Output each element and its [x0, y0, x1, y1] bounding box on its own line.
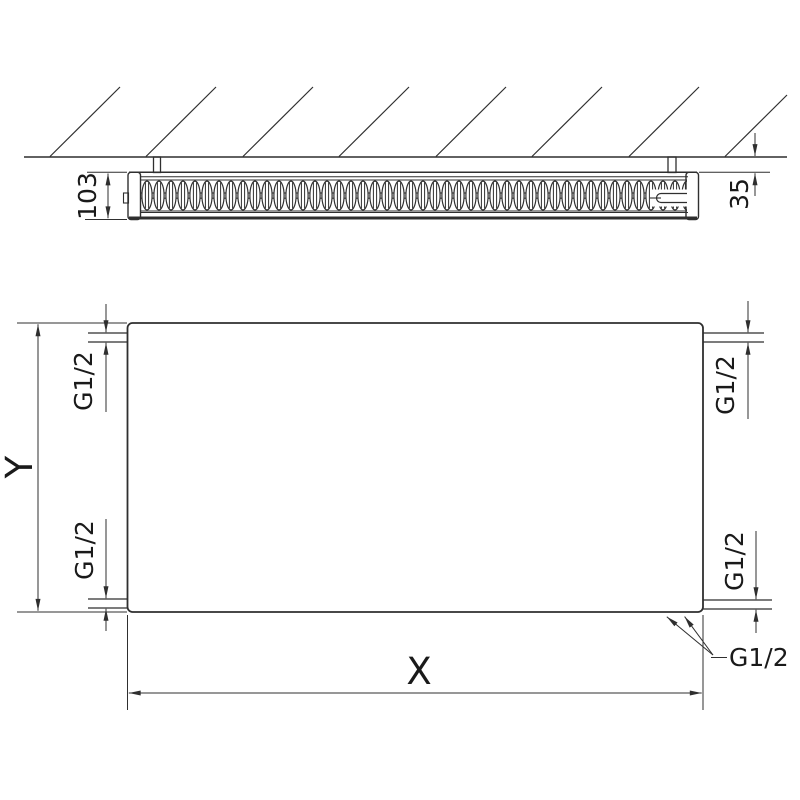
wall-gap-dimension-label: 35 [725, 178, 754, 210]
radiator-front-panel [128, 323, 704, 612]
mounting-brackets [154, 157, 677, 173]
end-cap-left [128, 172, 141, 219]
dimension-wall-gap: 35 [699, 133, 770, 210]
valve-insert [650, 190, 688, 207]
port-thread-label: G1/2 [69, 351, 98, 411]
bottom-connection-callout: G1/2 [667, 617, 789, 672]
port-bottom-left: G1/2 [70, 519, 127, 631]
height-dimension-label: Y [0, 455, 41, 479]
wall-hatching [50, 87, 787, 157]
port-thread-label: G1/2 [711, 355, 740, 415]
bottom-connection-label: G1/2 [729, 643, 789, 672]
top-section-view: 103 35 [24, 87, 787, 220]
dimension-height: Y [0, 323, 127, 612]
bracket-right [668, 157, 676, 173]
dimension-depth: 103 [73, 172, 127, 220]
port-thread-label: G1/2 [720, 531, 749, 591]
callout-arrow [685, 617, 713, 655]
callout-arrow [667, 617, 713, 655]
port-thread-label: G1/2 [70, 520, 99, 580]
convection-fins [141, 180, 687, 211]
depth-dimension-label: 103 [73, 172, 102, 220]
port-top-right: G1/2 [704, 301, 765, 419]
port-bottom-right: G1/2 [704, 531, 773, 633]
radiator-drawing-canvas: 103 35 G1/2 G1/2 [0, 0, 800, 800]
radiator-top-view [124, 172, 699, 219]
width-dimension-label: X [406, 650, 431, 693]
bracket-left [154, 157, 161, 173]
front-view: G1/2 G1/2 G1/2 G1/2 [0, 301, 789, 710]
port-top-left: G1/2 [69, 304, 127, 412]
dimension-width: X [128, 615, 704, 710]
wall-section [24, 87, 787, 157]
technical-drawing-page: 103 35 G1/2 G1/2 [0, 0, 800, 800]
